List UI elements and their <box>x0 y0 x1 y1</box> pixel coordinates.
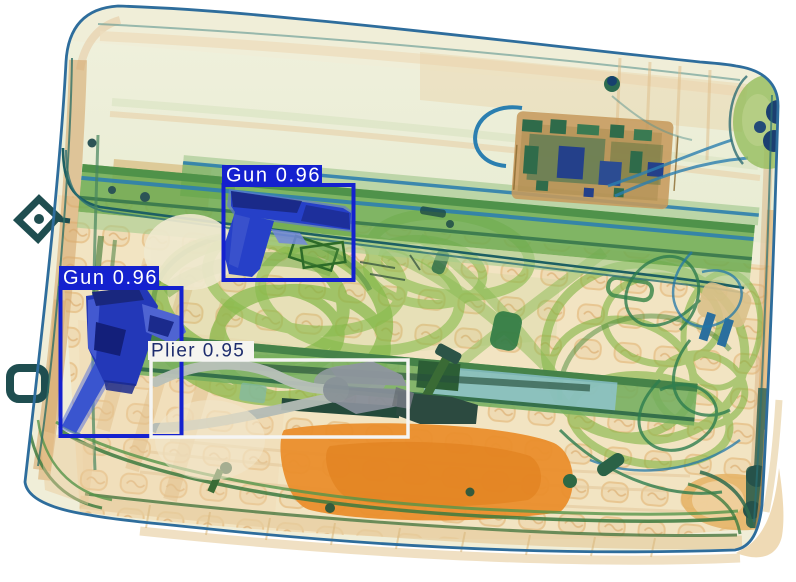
svg-text:Gun 0.96: Gun 0.96 <box>63 267 158 289</box>
svg-text:Gun 0.96: Gun 0.96 <box>226 165 321 187</box>
svg-text:Plier 0.95: Plier 0.95 <box>151 341 245 362</box>
